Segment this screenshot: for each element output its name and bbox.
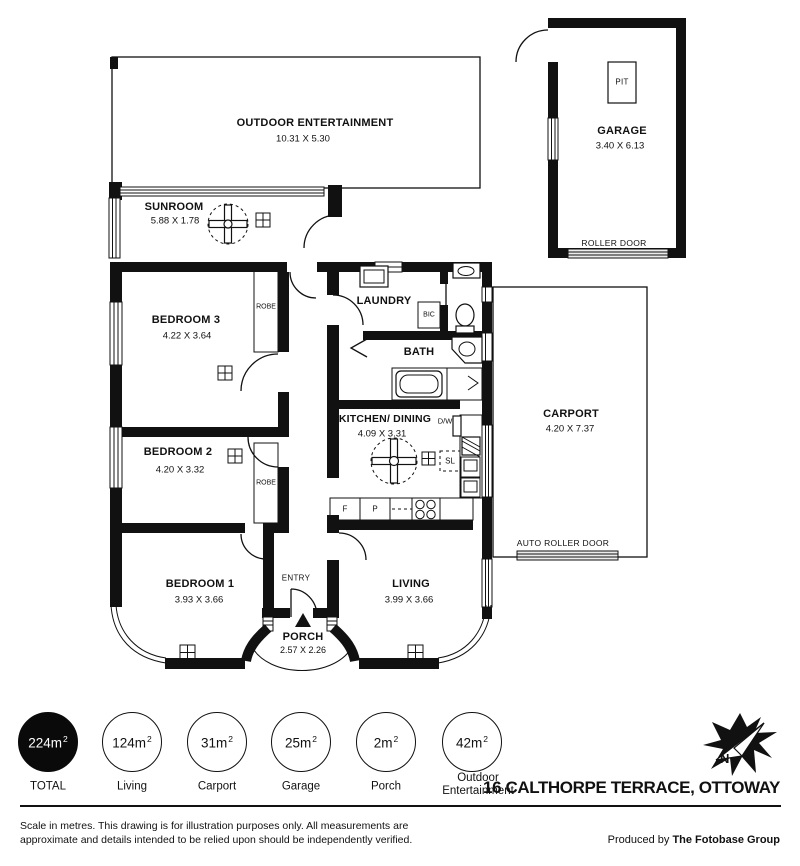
label-robe-bed3: ROBE <box>256 304 276 311</box>
floorplan-page: OUTDOOR ENTERTAINMENT 10.31 X 5.30 GARAG… <box>0 0 800 866</box>
label-auto-roller-door: AUTO ROLLER DOOR <box>517 538 610 548</box>
produced-by-text: Produced by <box>608 834 670 846</box>
room-dims-living: 3.99 X 3.66 <box>385 595 434 606</box>
room-dims-bedroom2: 4.20 X 3.32 <box>156 465 205 476</box>
area-circle-total: 224m2 <box>18 712 78 772</box>
compass-logo: N <box>703 712 777 776</box>
room-label-porch: PORCH <box>283 631 324 643</box>
room-label-kitchen: KITCHEN/ DINING <box>339 413 431 425</box>
bedroom1-door-arc <box>241 534 266 559</box>
area-label-total: TOTAL <box>30 780 66 793</box>
area-label-carport: Carport <box>198 780 236 793</box>
carport-outline <box>493 287 647 557</box>
room-label-laundry: LAUNDRY <box>357 295 412 307</box>
room-label-outdoor: OUTDOOR ENTERTAINMENT <box>237 117 394 129</box>
label-pit: PIT <box>615 78 628 87</box>
property-address: 16 CALTHORPE TERRACE, OTTOWAY <box>483 778 780 798</box>
room-dims-bedroom1: 3.93 X 3.66 <box>175 595 224 606</box>
sunroom-door-arc <box>304 215 337 248</box>
bath-bifold-door <box>351 339 367 357</box>
area-label-porch: Porch <box>371 780 401 793</box>
room-label-sunroom: SUNROOM <box>145 201 204 213</box>
area-circle-outdoor: 42m2 <box>442 712 502 772</box>
label-robe-bed2: ROBE <box>256 480 276 487</box>
area-circle-porch: 2m2 <box>356 712 416 772</box>
area-label-garage: Garage <box>282 780 320 793</box>
entry-marker-triangle <box>295 613 311 627</box>
label-dishwasher: D/W <box>438 417 453 426</box>
area-circle-garage: 25m2 <box>271 712 331 772</box>
laundry-trough-icon <box>360 266 388 287</box>
room-dims-bedroom3: 4.22 X 3.64 <box>163 331 212 342</box>
room-label-living: LIVING <box>392 578 430 590</box>
room-label-carport: CARPORT <box>543 408 599 420</box>
footer-divider <box>20 805 781 807</box>
room-label-bedroom1: BEDROOM 1 <box>166 578 234 590</box>
room-dims-garage: 3.40 X 6.13 <box>596 141 645 152</box>
bath-basin-icon <box>452 337 482 363</box>
hall-sunroom-door-arc <box>290 272 316 298</box>
bedroom2-door-arc <box>248 437 278 467</box>
roller-door-bars <box>517 249 668 560</box>
garage-door-arc <box>516 30 548 62</box>
ceiling-fan-kitchen <box>371 438 417 484</box>
room-label-garage: GARAGE <box>597 125 646 137</box>
wc-sink-icon <box>453 263 480 278</box>
room-dims-kitchen: 4.09 X 3.31 <box>358 429 407 440</box>
area-circle-living: 124m2 <box>102 712 162 772</box>
room-label-bath: BATH <box>404 346 435 358</box>
walls <box>109 18 686 669</box>
label-fridge: F <box>343 505 348 514</box>
ceiling-fan-sunroom <box>208 204 248 244</box>
room-label-bedroom3: BEDROOM 3 <box>152 314 220 326</box>
label-bic: BIC <box>423 312 435 319</box>
kitchen-sink-icon <box>462 437 480 457</box>
dishwasher-box <box>453 416 461 436</box>
living-door-arc <box>339 533 366 560</box>
svg-text:N: N <box>720 751 729 766</box>
label-pantry: P <box>372 505 377 514</box>
disclaimer-text: Scale in metres. This drawing is for ill… <box>20 820 458 848</box>
room-dims-sunroom: 5.88 X 1.78 <box>151 216 200 227</box>
room-dims-outdoor: 10.31 X 5.30 <box>276 134 330 145</box>
room-label-entry: ENTRY <box>282 574 310 583</box>
room-dims-carport: 4.20 X 7.37 <box>546 424 595 435</box>
bedroom3-door-arc <box>241 354 278 391</box>
room-label-bedroom2: BEDROOM 2 <box>144 446 212 458</box>
fixtures-linework <box>180 62 636 660</box>
shower-arrow-icon <box>468 376 478 390</box>
area-circle-carport: 31m2 <box>187 712 247 772</box>
producer-name: The Fotobase Group <box>672 834 780 846</box>
label-skylight: SL <box>445 457 455 466</box>
producer-credit: Produced by The Fotobase Group <box>608 834 780 846</box>
area-label-living: Living <box>117 780 147 793</box>
bathtub-icon <box>392 368 482 400</box>
room-dims-porch: 2.57 X 2.26 <box>280 645 326 655</box>
label-roller-door: ROLLER DOOR <box>581 238 646 248</box>
toilet-icon <box>456 304 474 333</box>
